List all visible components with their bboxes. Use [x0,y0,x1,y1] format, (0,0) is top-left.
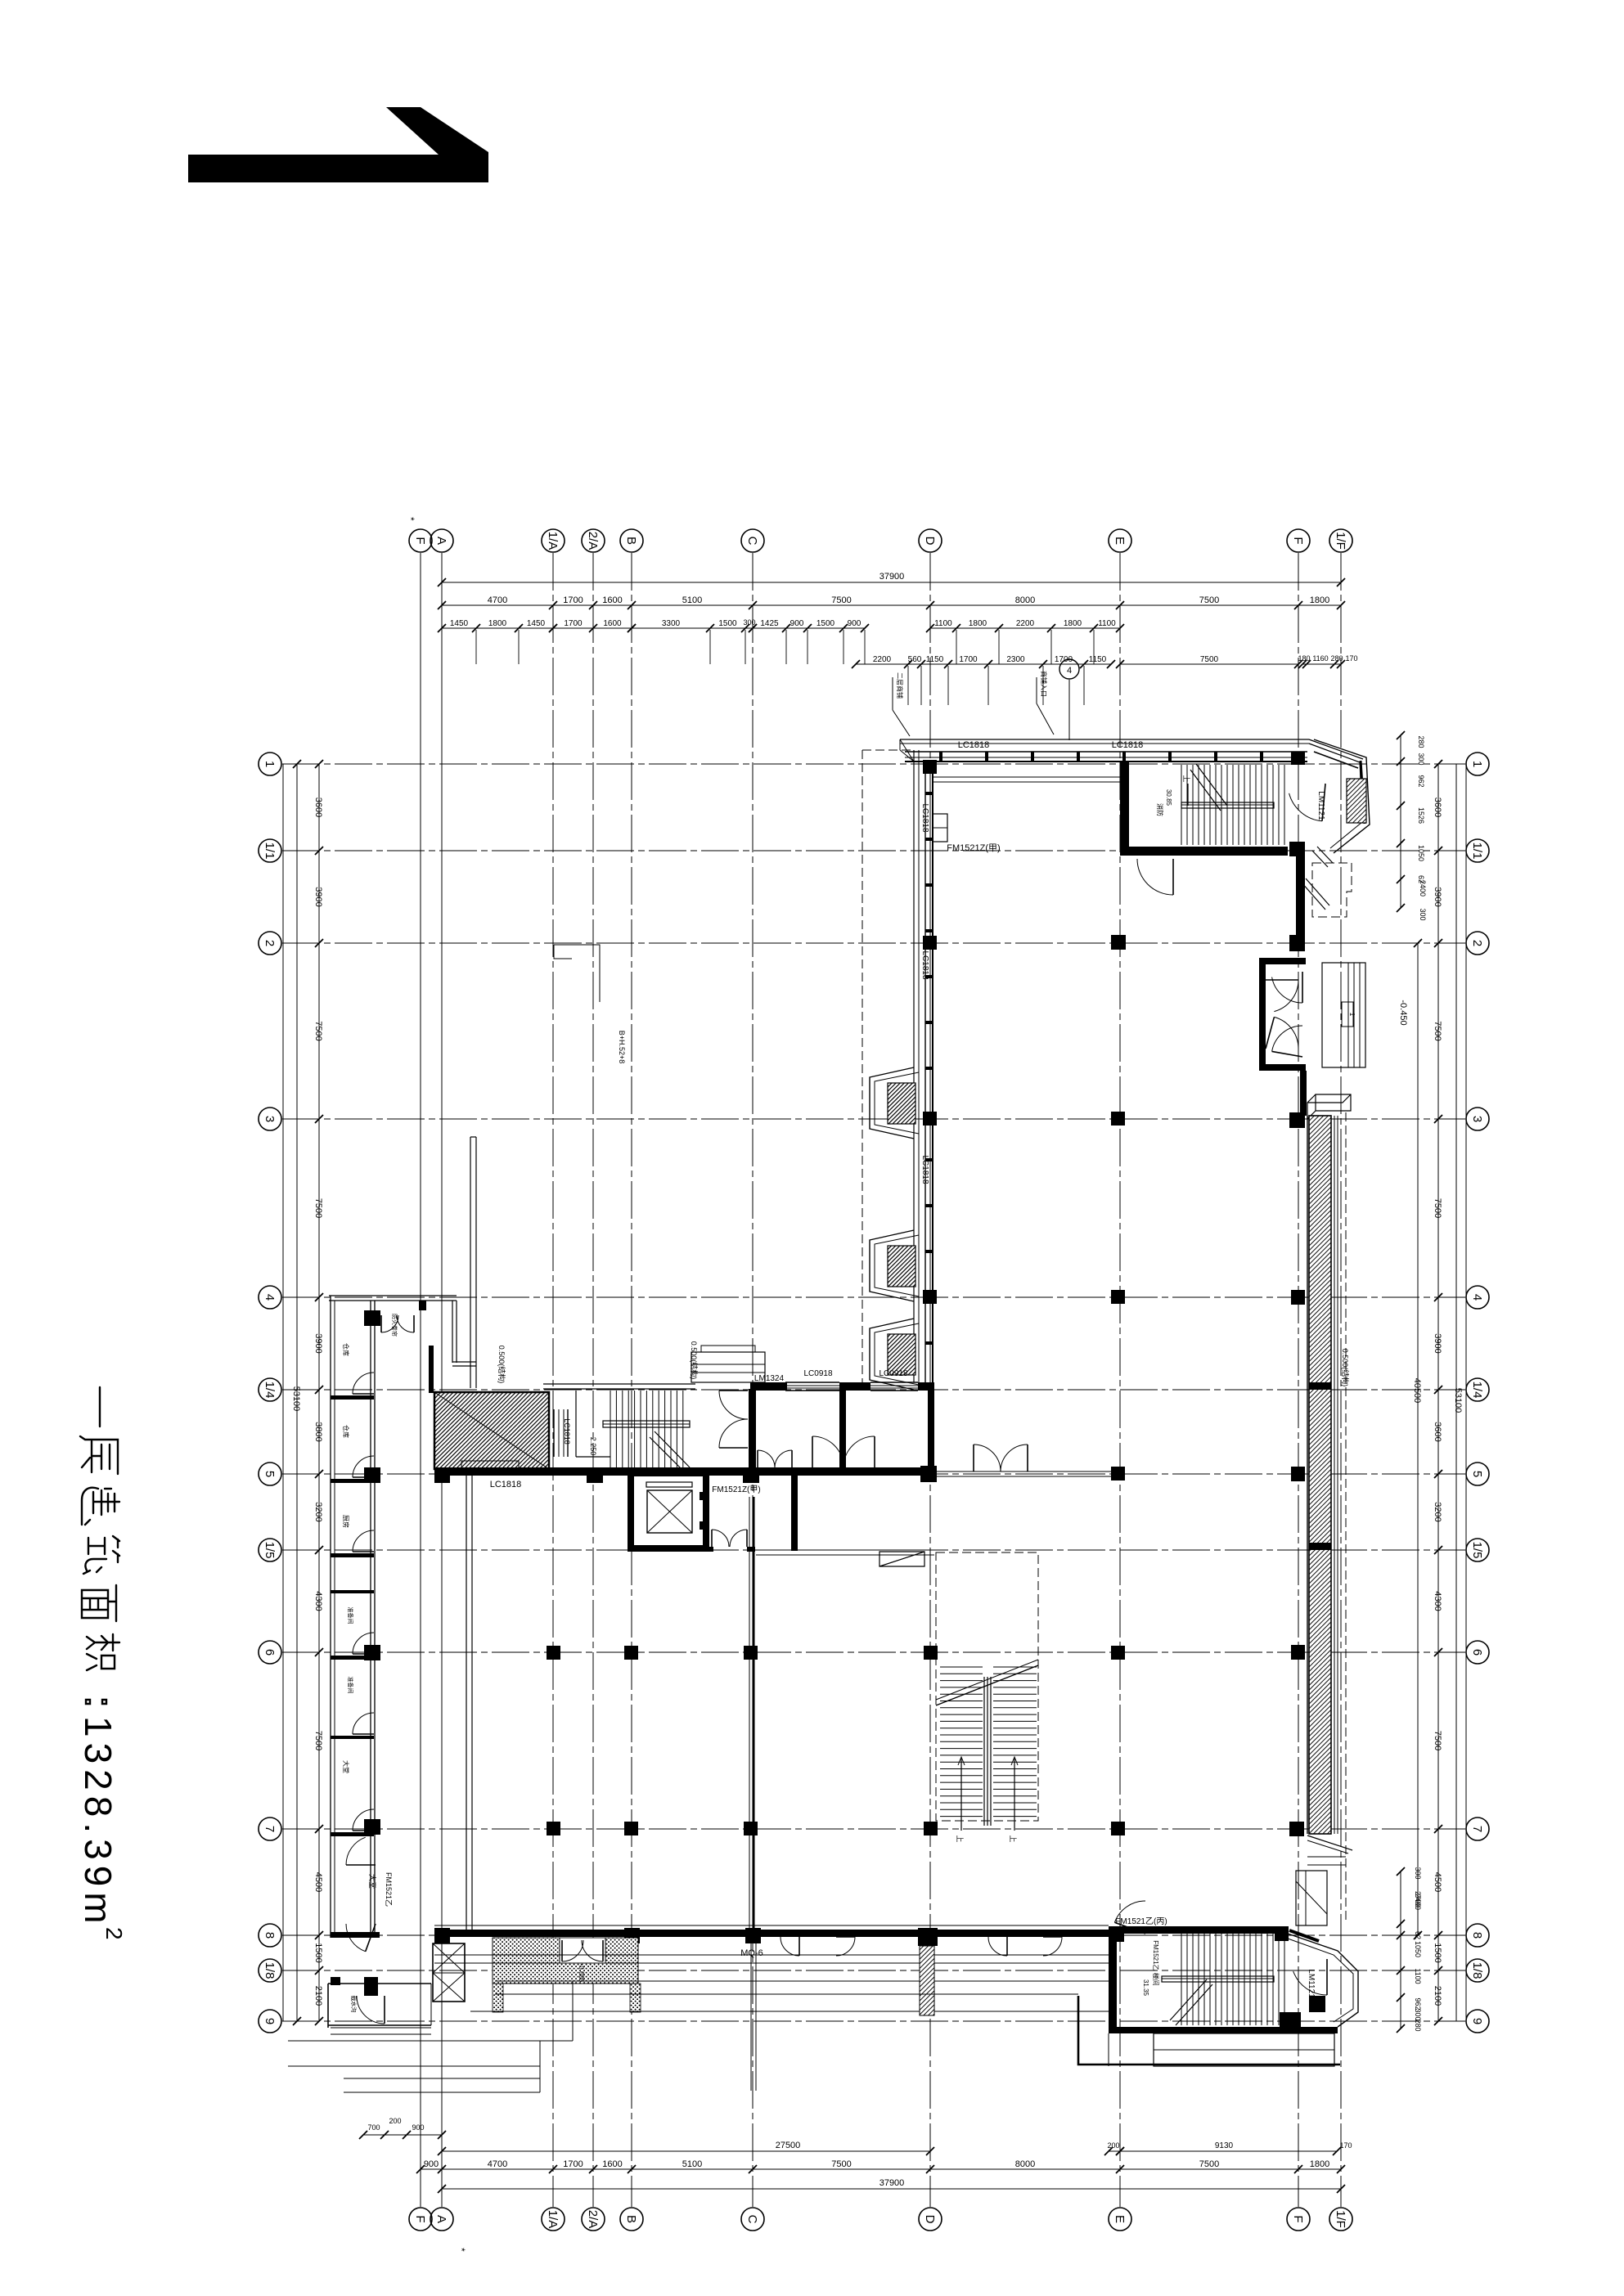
svg-text:FM1521Z(甲): FM1521Z(甲) [712,1485,760,1494]
svg-text:FM1521乙(丙): FM1521乙(丙) [1115,1916,1167,1926]
svg-text:1: 1 [1470,761,1484,767]
svg-text:2.250: 2.250 [589,1437,597,1456]
svg-text:LM1121: LM1121 [1307,1969,1316,1998]
svg-text:1/8: 1/8 [1470,1962,1484,1979]
svg-text:8: 8 [1470,1932,1484,1939]
svg-text:D: D [923,537,937,546]
svg-text:2100: 2100 [313,1986,323,2006]
svg-text:1600: 1600 [602,595,622,605]
svg-text:300: 300 [743,618,755,627]
svg-text:7500: 7500 [1200,655,1219,664]
svg-text:7500: 7500 [831,2159,851,2169]
svg-text:B+H.52+8: B+H.52+8 [618,1031,626,1064]
svg-text:4: 4 [1470,1294,1484,1301]
svg-text:900: 900 [412,2123,424,2132]
svg-text:E: E [1113,2215,1127,2223]
svg-text:1050: 1050 [1417,845,1425,861]
svg-text:*: * [456,2248,467,2252]
svg-text:7500: 7500 [313,1021,323,1040]
svg-text:7500: 7500 [1433,1198,1442,1218]
svg-text:LC1818: LC1818 [1112,740,1144,750]
svg-text:1100: 1100 [934,619,952,628]
svg-text:2/A: 2/A [586,2210,600,2229]
svg-text:3900: 3900 [313,887,323,906]
svg-text:5100: 5100 [682,2159,702,2169]
svg-text:1600: 1600 [603,619,622,628]
svg-text:1700: 1700 [564,619,583,628]
svg-text:200: 200 [389,2117,401,2125]
svg-text:大堂: 大堂 [342,1760,350,1773]
svg-text:3900: 3900 [1433,887,1442,906]
svg-text:F: F [413,537,427,544]
svg-text:300: 300 [1419,908,1427,920]
svg-text:商铺入口: 商铺入口 [1040,671,1048,697]
svg-text:4300: 4300 [1433,1591,1442,1611]
svg-text:LC0918: LC0918 [879,1369,907,1378]
svg-text:3900: 3900 [313,1333,323,1353]
svg-text:53100: 53100 [1453,1388,1463,1413]
svg-text:LC1818: LC1818 [958,740,990,750]
svg-text:1700: 1700 [959,655,978,664]
svg-text:消防: 消防 [1156,803,1164,816]
svg-text:962: 962 [1417,775,1425,787]
svg-text:F: F [1291,537,1305,544]
svg-text:2/A: 2/A [586,532,600,550]
svg-text:31.35: 31.35 [1142,1979,1149,1997]
svg-text:1/F: 1/F [1334,2210,1347,2228]
svg-text:4500: 4500 [313,1872,323,1892]
svg-text:1500: 1500 [718,619,737,628]
svg-text:1/5: 1/5 [263,1542,277,1559]
svg-text:5100: 5100 [682,595,702,605]
svg-text:F: F [1291,2215,1305,2222]
svg-text:5: 5 [263,1471,277,1477]
svg-text:900: 900 [790,619,804,628]
svg-text:1800: 1800 [1310,595,1329,605]
svg-text:B: B [624,2215,638,2223]
svg-text:1100: 1100 [1414,1968,1422,1984]
svg-text:1100: 1100 [1098,619,1116,628]
svg-text:LC1818: LC1818 [920,803,929,832]
svg-text:7: 7 [1470,1826,1484,1832]
svg-text:1150: 1150 [926,655,944,664]
svg-text:30.85: 30.85 [1165,789,1172,807]
svg-text:7500: 7500 [1433,1731,1442,1750]
svg-text:F: F [413,2215,427,2222]
svg-text:300: 300 [1414,1867,1422,1879]
svg-text:1/8: 1/8 [263,1962,277,1979]
svg-text:8: 8 [263,1932,277,1939]
svg-text:1800: 1800 [969,619,987,628]
svg-text:1425: 1425 [760,619,779,628]
svg-text:2: 2 [263,940,277,946]
svg-text:280: 280 [1330,654,1343,663]
svg-text:900: 900 [848,619,861,628]
svg-text:37900: 37900 [879,572,905,582]
svg-text:FM1521乙 楼间: FM1521乙 楼间 [1152,1940,1160,1986]
svg-text:1/4: 1/4 [263,1382,277,1399]
svg-text:3600: 3600 [1433,798,1442,817]
svg-text:FM1521乙: FM1521乙 [385,1872,393,1907]
svg-text:9130: 9130 [1215,2141,1234,2150]
svg-text:2: 2 [101,1927,127,1940]
svg-text:1: 1 [263,761,277,767]
svg-text:2100: 2100 [1433,1986,1442,2006]
svg-text:7500: 7500 [313,1198,323,1218]
svg-text:3600: 3600 [1433,1422,1442,1441]
svg-text:-0.005: -0.005 [578,1964,585,1983]
svg-text:1500: 1500 [816,619,835,628]
svg-text:1/A: 1/A [546,2210,560,2229]
svg-text:3: 3 [263,1116,277,1122]
svg-text:6: 6 [1470,1649,1484,1656]
svg-text:仓库: 仓库 [342,1343,350,1356]
svg-text:170: 170 [1339,2141,1352,2150]
svg-text:0.500(结构): 0.500(结构) [497,1346,506,1384]
svg-text:4: 4 [1067,666,1072,676]
svg-text:大堂: 大堂 [368,1874,377,1889]
svg-text:1500: 1500 [1433,1943,1442,1962]
svg-text:准备间: 准备间 [347,1677,354,1694]
svg-text:3: 3 [1470,1116,1484,1122]
svg-text:LM1324: LM1324 [754,1374,785,1383]
svg-text:1800: 1800 [1064,619,1082,628]
svg-text:二层商铺: 二层商铺 [896,672,904,699]
svg-text:仓库: 仓库 [342,1425,350,1438]
svg-text:40500: 40500 [1412,1378,1422,1404]
svg-text:700: 700 [367,2123,380,2132]
svg-text:E: E [1113,537,1127,545]
svg-text:1/5: 1/5 [1470,1542,1484,1559]
svg-text:0.500(结构): 0.500(结构) [1341,1349,1350,1387]
svg-text:4700: 4700 [488,2159,507,2169]
svg-text:3600: 3600 [313,798,323,817]
svg-text:1800: 1800 [1310,2159,1329,2169]
svg-text:560: 560 [908,655,922,664]
svg-text:厨房: 厨房 [342,1515,350,1528]
svg-text:2700: 2700 [1414,1891,1422,1907]
svg-text:1/F: 1/F [1334,532,1347,550]
svg-text:7500: 7500 [1433,1021,1442,1040]
svg-text:53100: 53100 [291,1386,301,1412]
svg-text:C: C [745,2215,759,2224]
svg-text:180: 180 [1298,654,1310,663]
svg-text:1160: 1160 [1312,654,1328,663]
svg-text:4300: 4300 [313,1591,323,1611]
svg-text:4700: 4700 [488,595,507,605]
svg-text:7500: 7500 [313,1731,323,1750]
svg-text:8000: 8000 [1015,595,1035,605]
svg-text:A: A [434,2215,448,2223]
svg-text:62: 62 [1414,1931,1422,1939]
svg-text:LC0918: LC0918 [803,1369,832,1378]
svg-text:截水沟: 截水沟 [350,1996,358,2013]
svg-text:*: * [405,517,416,521]
svg-text:LC1818: LC1818 [490,1480,522,1489]
svg-text:1150: 1150 [1089,655,1107,664]
svg-text:3900: 3900 [1433,1333,1442,1353]
svg-text:9: 9 [1470,2018,1484,2024]
svg-text:9: 9 [263,2018,277,2024]
svg-text:1700: 1700 [563,595,583,605]
svg-text:7: 7 [263,1826,277,1832]
svg-text:LM1121: LM1121 [1316,791,1325,820]
svg-text:280: 280 [1414,2019,1422,2031]
svg-text:上: 上 [1009,1835,1017,1842]
svg-text:1/1: 1/1 [263,842,277,860]
svg-text:LC1818: LC1818 [563,1418,571,1445]
svg-text:3200: 3200 [313,1502,323,1521]
svg-text:FM1521Z(甲): FM1521Z(甲) [947,843,1000,853]
svg-text:300: 300 [1417,753,1425,765]
svg-text:3300: 3300 [662,619,681,628]
svg-text:7500: 7500 [1199,2159,1219,2169]
svg-text:C: C [745,537,759,546]
svg-text:2200: 2200 [873,655,892,664]
svg-text:1450: 1450 [450,619,469,628]
svg-text:上: 上 [956,1835,964,1842]
svg-text:4500: 4500 [1433,1872,1442,1892]
svg-text:170: 170 [1345,654,1357,663]
svg-text:1/A: 1/A [546,532,560,550]
svg-text:1: 1 [1348,1013,1356,1017]
svg-text:7500: 7500 [1199,595,1219,605]
svg-text:3800: 3800 [313,1422,323,1441]
svg-text:1328.39m: 1328.39m [77,1716,119,1930]
svg-text:7500: 7500 [831,595,851,605]
svg-text:1526: 1526 [1417,807,1425,824]
svg-text:1050: 1050 [1414,1941,1422,1957]
svg-text:1600: 1600 [602,2159,622,2169]
svg-text:5: 5 [1470,1471,1484,1477]
svg-text:8000: 8000 [1015,2159,1035,2169]
svg-text:1/4: 1/4 [1470,1382,1484,1399]
svg-text:准备间: 准备间 [347,1607,354,1624]
svg-text:1500: 1500 [313,1943,323,1962]
svg-text:6: 6 [263,1649,277,1656]
svg-text:MQ-6: MQ-6 [740,1948,763,1958]
svg-text:37900: 37900 [879,2178,905,2188]
svg-text:1450: 1450 [527,619,546,628]
svg-text:2: 2 [1470,940,1484,946]
svg-text:27500: 27500 [776,2141,801,2150]
svg-text:3200: 3200 [1433,1502,1442,1521]
svg-text:280: 280 [1417,735,1425,748]
svg-text:A: A [434,537,448,545]
svg-text:4: 4 [263,1294,277,1301]
svg-text:2300: 2300 [1006,655,1025,664]
svg-text:LC1818: LC1818 [920,950,929,979]
svg-text:上: 上 [1182,775,1190,782]
svg-text:防火卷帘: 防火卷帘 [391,1314,398,1337]
svg-text:200: 200 [1107,2141,1119,2150]
svg-text:-0.450: -0.450 [1398,1000,1408,1025]
svg-text:LC1818: LC1818 [920,1155,929,1184]
svg-text:1800: 1800 [488,619,507,628]
svg-text:B: B [624,537,638,545]
svg-text:1/1: 1/1 [1470,842,1484,860]
svg-text:2200: 2200 [1016,619,1035,628]
svg-text:900: 900 [424,2159,439,2169]
svg-text:1700: 1700 [563,2159,583,2169]
svg-text:2400: 2400 [1419,880,1427,896]
svg-text:D: D [923,2215,937,2224]
